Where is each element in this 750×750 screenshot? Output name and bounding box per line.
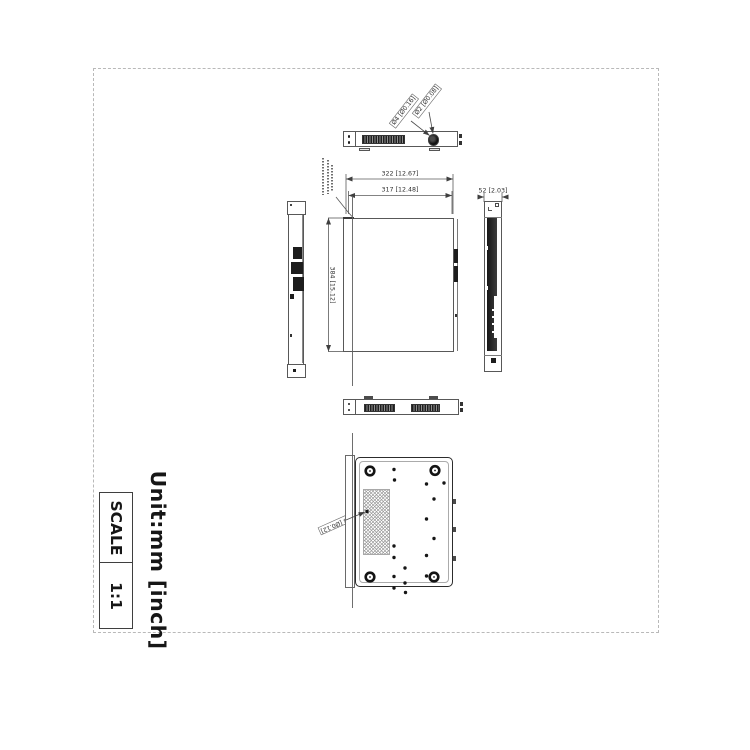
heatsink-slot bbox=[492, 323, 495, 325]
front-right-mark bbox=[459, 141, 462, 145]
heatsink-slot bbox=[487, 286, 489, 290]
side-connector bbox=[293, 277, 304, 291]
rear-panel-body bbox=[343, 399, 459, 415]
side-connector bbox=[293, 247, 302, 259]
side-connector bbox=[290, 294, 294, 299]
rear-right-mark bbox=[460, 402, 463, 406]
top-view-body bbox=[343, 218, 454, 352]
rear-connector-block bbox=[411, 404, 440, 412]
right-side-bottom-divider bbox=[484, 355, 502, 356]
bottom-edge-tab bbox=[453, 499, 456, 504]
front-right-mark bbox=[459, 134, 462, 138]
power-knob bbox=[428, 134, 440, 146]
rear-screw-dot bbox=[348, 409, 351, 412]
heatsink-slot bbox=[487, 246, 489, 250]
dim-overall-width: 322 [12.67] bbox=[380, 170, 418, 177]
unit-label: Unit:mm [inch] bbox=[146, 471, 170, 650]
right-side-corner-mark bbox=[488, 207, 492, 211]
top-view-connector bbox=[454, 266, 458, 282]
right-side-screw bbox=[491, 358, 496, 363]
front-foot bbox=[429, 148, 440, 152]
side-connector bbox=[291, 262, 303, 274]
bottom-bracket-strip bbox=[345, 455, 355, 588]
dim-overall-depth: 384 [15.12] bbox=[329, 265, 336, 303]
dim-side-depth: 52 [2.03] bbox=[478, 188, 508, 195]
bottom-edge-tab bbox=[453, 527, 456, 532]
heatsink-slot bbox=[492, 331, 495, 333]
front-panel-divider bbox=[355, 131, 356, 147]
front-foot bbox=[359, 148, 370, 152]
right-side-top-slot bbox=[495, 203, 499, 207]
scale-value: 1:1 bbox=[107, 582, 125, 610]
scale-label: SCALE bbox=[107, 500, 125, 555]
front-vent-grille bbox=[362, 135, 405, 144]
dim-inner-width: 317 [12.48] bbox=[381, 186, 419, 193]
side-screw-dot bbox=[290, 204, 292, 206]
left-side-bottom-ear bbox=[287, 364, 306, 379]
bottom-edge-tab bbox=[453, 556, 456, 561]
drawing-sheet: Ø4 [Ø0.16] Ø2 [Ø0.08] 322 [12.67] 317 [1… bbox=[0, 0, 750, 750]
heatsink-slot bbox=[492, 309, 495, 311]
bottom-hatch-vent bbox=[363, 489, 390, 555]
side-screw-dot bbox=[290, 334, 292, 337]
top-view-connector bbox=[454, 249, 458, 263]
rear-screw-dot bbox=[348, 403, 351, 406]
heatsink-slot bbox=[492, 316, 495, 318]
front-screw-dot bbox=[348, 135, 351, 138]
bracket-corner-mark bbox=[343, 217, 354, 220]
side-screw-dot bbox=[293, 369, 296, 372]
rear-panel-divider bbox=[355, 399, 356, 415]
top-view-rear-lip bbox=[457, 219, 458, 351]
front-screw-dot bbox=[348, 141, 351, 144]
rear-connector-block bbox=[364, 404, 395, 412]
left-side-top-ear bbox=[287, 201, 306, 215]
top-view-connector-dot bbox=[455, 314, 458, 317]
rear-right-mark bbox=[460, 408, 463, 412]
